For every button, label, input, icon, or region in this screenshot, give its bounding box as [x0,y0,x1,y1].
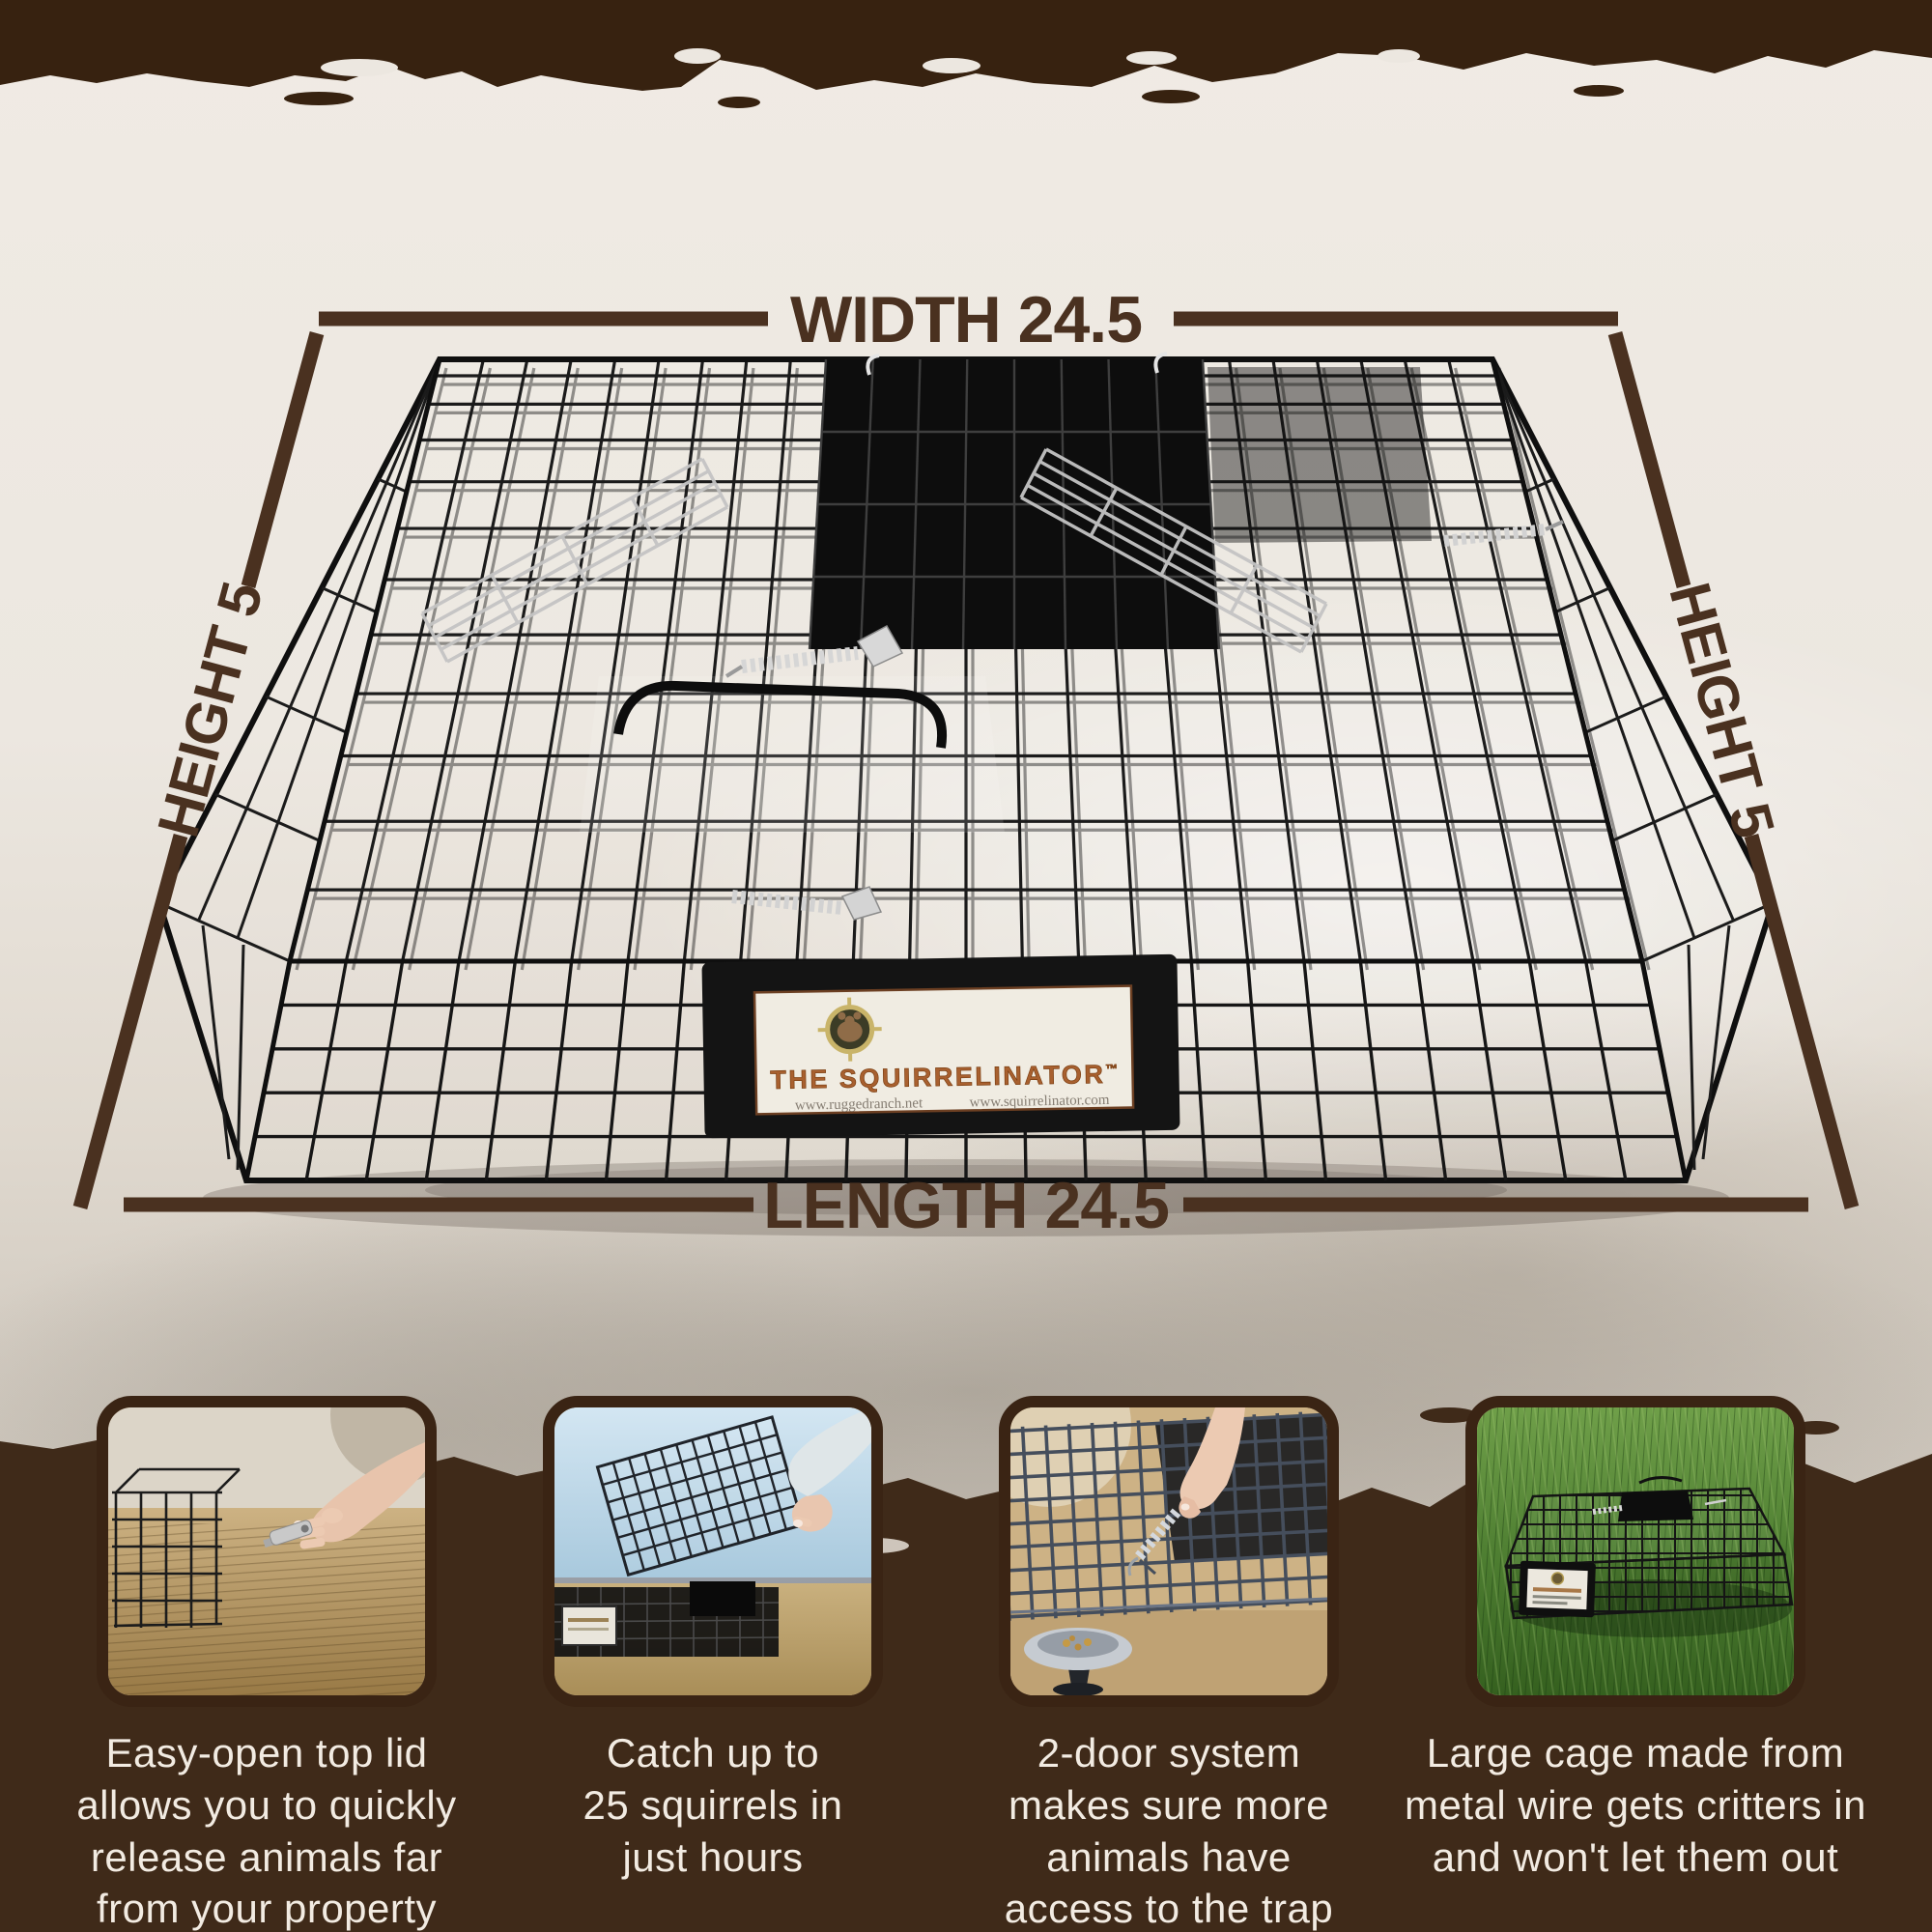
annotated-product-photo: THE SQUIRRELINATOR™ www.ruggedranch.net … [0,0,1932,1381]
cage-on-grass-photo [1477,1407,1794,1695]
hand-lifting-mesh-lid-photo [554,1407,871,1695]
width-dimension-label: WIDTH 24.5 [790,283,1142,356]
product-infographic: THE SQUIRRELINATOR™ www.ruggedranch.net … [0,0,1932,1932]
mini-cage [1506,1477,1792,1618]
label-website-left: www.ruggedranch.net [795,1095,923,1113]
length-dimension-label: LENGTH 24.5 [763,1169,1169,1242]
hand-releasing-latch-photo [108,1407,425,1695]
cage-illustration: THE SQUIRRELINATOR™ www.ruggedranch.net … [159,354,1773,1180]
feature-caption-4: Large cage made from metal wire gets cri… [1346,1727,1925,1883]
feature-thumbnail-2 [543,1396,883,1707]
product-label: THE SQUIRRELINATOR™ www.ruggedranch.net … [701,954,1179,1139]
feature-thumbnail-3 [999,1396,1339,1707]
label-website-right: www.squirrelinator.com [969,1093,1109,1111]
hand-pulling-spring-door-photo [1010,1407,1327,1695]
trap-silhouette [554,1581,779,1657]
feature-thumbnail-1 [97,1396,437,1707]
label-title: THE SQUIRRELINATOR™ [770,1060,1121,1094]
feature-thumbnail-4 [1465,1396,1805,1707]
